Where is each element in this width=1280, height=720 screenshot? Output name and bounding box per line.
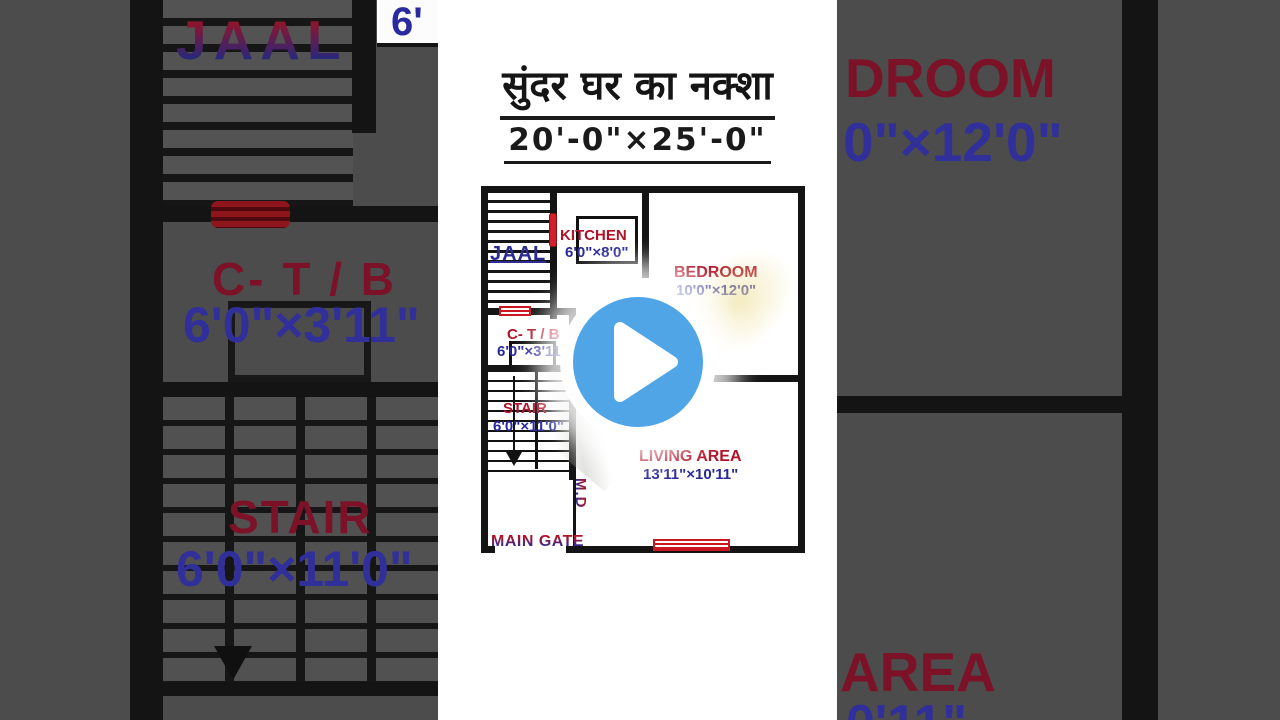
play-triangle-icon	[573, 297, 703, 427]
living-label: LIVING AREA	[639, 448, 742, 466]
md-label: M.D	[572, 478, 589, 509]
bg-living-dims: 0'11"	[846, 694, 967, 720]
video-frame: JAAL 6' C- T / B 6'0"×3'11" STAIR 6'0"×1…	[0, 0, 1280, 720]
jaal-right-wall	[550, 186, 557, 319]
plot-size-text: 20'-0"×25'-0"	[504, 122, 770, 164]
ctb-stair-wall	[481, 365, 576, 372]
stair-arrow-icon	[506, 452, 522, 466]
living-dims: 13'11"×10'11"	[643, 466, 738, 483]
ctb-dims: 6'0"×3'11"	[497, 343, 568, 360]
bg-jaal-right-wall	[352, 0, 376, 133]
main-gate-label: MAIN GATE	[491, 533, 584, 551]
bg-wall-h4	[837, 396, 1122, 413]
kitchen-dims: 6'0"×8'0"	[565, 244, 629, 261]
bg-right-outer-wall	[1122, 0, 1158, 720]
plot-size: 20'-0"×25'-0"	[438, 122, 837, 164]
page-title: सुंदर घर का नक्शा	[438, 56, 837, 120]
jaal-label: JAAL	[490, 243, 546, 266]
living-window-marker	[653, 539, 730, 551]
kitchen-label: KITCHEN	[560, 227, 627, 244]
bg-bedroom-dims: 0"×12'0"	[843, 110, 1063, 174]
kitchen-bedroom-wall	[642, 186, 649, 278]
bg-left-outer-wall	[130, 0, 163, 720]
bg-wall-h3	[130, 682, 438, 696]
bg-ctb-dims: 6'0"×3'11"	[183, 296, 420, 354]
bg-window-marker	[211, 201, 290, 228]
ctb-window-marker	[499, 306, 531, 316]
plan-wall-right	[798, 186, 805, 553]
bg-bedroom-label: DROOM	[845, 46, 1056, 110]
bg-stair-dims: 6'0"×11'0"	[176, 540, 413, 598]
bg-wall-h2	[130, 382, 438, 397]
bg-kitchen-dim-fragment: 6'	[377, 0, 438, 47]
bg-stair-label: STAIR	[228, 490, 373, 544]
play-button[interactable]	[573, 297, 703, 427]
page-title-text: सुंदर घर का नक्शा	[500, 56, 775, 120]
kitchen-door-marker	[549, 213, 557, 247]
bg-stair-arrow-icon	[214, 646, 252, 680]
bg-jaal-label: JAAL	[176, 8, 348, 72]
